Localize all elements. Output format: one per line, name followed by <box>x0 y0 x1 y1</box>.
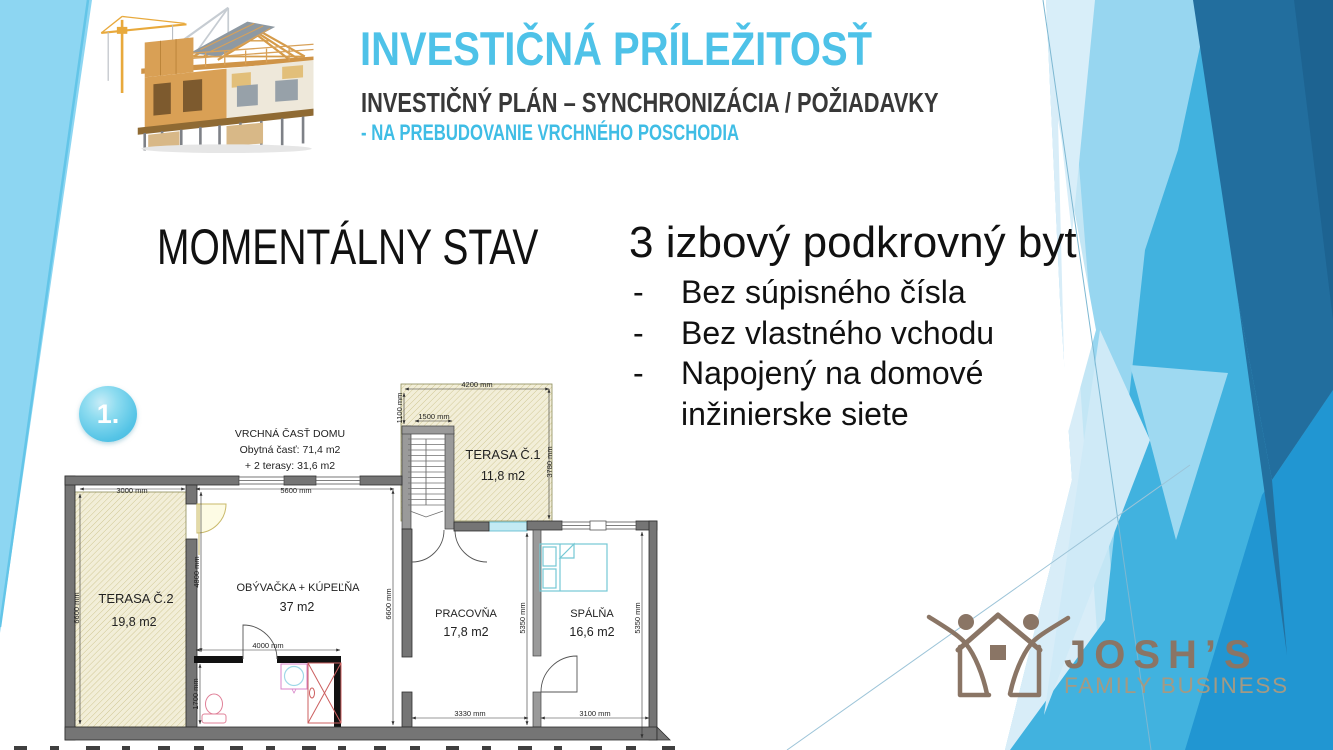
svg-text:+ 2 terasy: 31,6 m2: + 2 terasy: 31,6 m2 <box>245 460 335 472</box>
svg-text:4200 mm: 4200 mm <box>461 380 492 389</box>
svg-text:PRACOVŇA: PRACOVŇA <box>435 607 497 620</box>
svg-text:TERASA Č.2: TERASA Č.2 <box>98 591 173 606</box>
svg-text:VRCHNÁ ČASŤ DOMU: VRCHNÁ ČASŤ DOMU <box>235 427 345 440</box>
svg-text:JOSH’S: JOSH’S <box>1064 633 1259 677</box>
svg-text:4800 mm: 4800 mm <box>192 556 201 587</box>
svg-text:5350 mm: 5350 mm <box>518 602 527 633</box>
svg-text:SPÁLŇA: SPÁLŇA <box>570 607 614 620</box>
svg-text:5350 mm: 5350 mm <box>633 602 642 633</box>
svg-text:3330 mm: 3330 mm <box>454 709 485 718</box>
svg-text:OBÝVAČKA + KÚPEĽŇA: OBÝVAČKA + KÚPEĽŇA <box>237 581 361 594</box>
svg-text:6600 mm: 6600 mm <box>72 592 81 623</box>
svg-text:FAMILY BUSINESS: FAMILY BUSINESS <box>1064 673 1289 698</box>
svg-text:19,8 m2: 19,8 m2 <box>111 615 156 629</box>
svg-text:5600 mm: 5600 mm <box>280 486 311 495</box>
svg-text:1100 mm: 1100 mm <box>395 393 404 424</box>
svg-text:1500 mm: 1500 mm <box>418 412 449 421</box>
svg-text:1700 mm: 1700 mm <box>191 678 200 709</box>
svg-text:37 m2: 37 m2 <box>280 600 315 614</box>
svg-text:3780 mm: 3780 mm <box>545 446 554 477</box>
svg-text:11,8 m2: 11,8 m2 <box>481 469 525 483</box>
svg-text:TERASA Č.1: TERASA Č.1 <box>465 447 540 462</box>
svg-text:6600 mm: 6600 mm <box>384 588 393 619</box>
svg-text:3000 mm: 3000 mm <box>116 486 147 495</box>
svg-text:Obytná časť: 71,4 m2: Obytná časť: 71,4 m2 <box>240 444 341 456</box>
svg-text:4000 mm: 4000 mm <box>252 641 283 650</box>
svg-text:3100 mm: 3100 mm <box>579 709 610 718</box>
svg-text:17,8 m2: 17,8 m2 <box>443 625 488 639</box>
svg-text:16,6 m2: 16,6 m2 <box>569 625 614 639</box>
